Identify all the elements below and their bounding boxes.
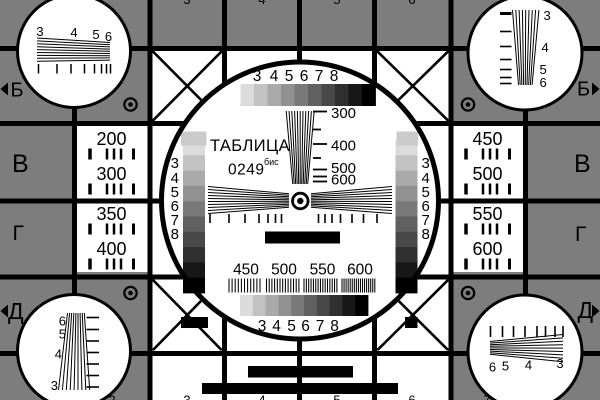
gray-step xyxy=(362,84,376,106)
grayscale-left xyxy=(183,140,205,293)
frequency-number: 600 xyxy=(472,239,502,259)
gray-step xyxy=(183,201,205,217)
digit-label: 7 xyxy=(316,318,325,335)
frequency-tick xyxy=(106,184,109,195)
gray-step xyxy=(266,295,279,316)
gray-step xyxy=(278,295,291,316)
gray-step xyxy=(396,171,418,187)
digit-label: 3 xyxy=(556,356,563,371)
gray-step xyxy=(349,84,363,106)
frequency-number: 400 xyxy=(96,239,126,259)
grayscale-digits-right: 345678 xyxy=(422,155,430,243)
frequency-tick xyxy=(508,149,511,160)
grayscale-top xyxy=(241,84,376,106)
frequency-tick xyxy=(132,259,135,270)
digit-label: 6 xyxy=(301,318,310,335)
frequency-tick xyxy=(496,184,499,195)
gray-step xyxy=(291,295,304,316)
frequency-number: 500 xyxy=(472,164,502,184)
corner-circle-top-left: 3456 xyxy=(18,0,131,108)
row-label-left-1: Б xyxy=(11,80,24,102)
digit-label: 4 xyxy=(272,318,281,335)
row-label-right-3: Г xyxy=(575,223,586,246)
frequency-tick xyxy=(508,259,511,270)
gray-step xyxy=(183,232,205,248)
digit-label: 5 xyxy=(92,27,99,42)
digit-label: 6 xyxy=(540,75,547,90)
frequency-tick xyxy=(489,224,492,235)
frequency-tick xyxy=(120,149,123,160)
frequency-tick xyxy=(482,184,485,195)
gray-step xyxy=(396,155,418,171)
gray-step xyxy=(253,295,266,316)
column-digit-stub: 6 xyxy=(408,0,415,7)
frequency-tick xyxy=(482,259,485,270)
test-card-canvas: 3456234567345678345678345678345678300400… xyxy=(0,0,600,400)
frequency-tick xyxy=(508,184,511,195)
digit-label: 4 xyxy=(525,358,532,373)
frequency-tick xyxy=(464,224,468,235)
frequency-tick xyxy=(88,184,92,195)
grayscale-bottom xyxy=(240,295,368,316)
corner-circle-bottom-right: 6543 xyxy=(468,295,582,400)
burst-label: 550 xyxy=(310,262,336,279)
frequency-tick xyxy=(496,224,499,235)
gray-step xyxy=(317,295,330,316)
bottom-bar-short xyxy=(248,366,353,378)
target-dot xyxy=(128,102,133,107)
frequency-tick xyxy=(113,224,116,235)
reference-patch-light-left xyxy=(181,132,207,146)
gray-step xyxy=(183,171,205,187)
reference-patch-light-right xyxy=(397,132,419,146)
reference-patch-black-left xyxy=(181,317,208,328)
burst-label: 450 xyxy=(233,262,259,279)
card-code: 0249 xyxy=(228,162,264,179)
burst-label: 500 xyxy=(271,262,297,279)
gray-step xyxy=(396,186,418,202)
frequency-tick xyxy=(464,184,468,195)
corner-circle-outline xyxy=(18,0,131,108)
digit-label: 6 xyxy=(300,68,309,85)
row-label-left-4: Д xyxy=(8,298,24,324)
row-label-right-1: Б xyxy=(577,79,590,101)
freq-label: 600 xyxy=(331,172,356,189)
digit-label: 8 xyxy=(171,226,179,243)
frequency-tick xyxy=(132,224,135,235)
gray-step xyxy=(322,84,336,106)
column-digit-stub: 5 xyxy=(333,0,340,7)
column-digit-stub: 6 xyxy=(408,393,415,400)
frequency-number: 300 xyxy=(96,164,126,184)
digit-label: 5 xyxy=(59,327,66,342)
digit-label: 5 xyxy=(287,318,296,335)
frequency-tick xyxy=(496,149,499,160)
frequency-tick xyxy=(88,149,92,160)
digit-label: 5 xyxy=(285,68,294,85)
tv-test-card: 3456234567345678345678345678345678300400… xyxy=(0,0,600,400)
frequency-tick xyxy=(482,149,485,160)
column-digit-stub: 3 xyxy=(183,393,190,400)
card-title: ТАБЛИЦА xyxy=(210,137,290,155)
gray-step xyxy=(183,217,205,233)
gray-step xyxy=(396,247,418,263)
bottom-bar-long xyxy=(202,383,398,394)
gray-step xyxy=(295,84,309,106)
frequency-tick xyxy=(106,259,109,270)
gray-step xyxy=(304,295,317,316)
row-label-right-2: В xyxy=(574,150,591,178)
frequency-tick xyxy=(496,259,499,270)
row-label-right-4: Д xyxy=(578,297,594,323)
frequency-number: 200 xyxy=(96,129,126,149)
row-label-left-2: В xyxy=(12,150,29,178)
frequency-tick xyxy=(120,259,123,270)
gray-step xyxy=(396,217,418,233)
frequency-tick xyxy=(106,224,109,235)
digit-label: 6 xyxy=(489,360,496,375)
target-dot xyxy=(466,102,471,107)
digit-label: 3 xyxy=(544,8,551,23)
digit-label: 8 xyxy=(422,226,430,243)
corner-circle-bottom-left: 6543 xyxy=(18,295,131,400)
digit-label: 3 xyxy=(36,24,43,39)
gray-step xyxy=(183,186,205,202)
grayscale-digits-left: 345678 xyxy=(171,155,179,243)
target-dot xyxy=(466,291,471,296)
card-code-suffix: бис xyxy=(264,157,279,167)
frequency-tick xyxy=(489,149,492,160)
reference-patch-black-right xyxy=(405,317,418,328)
gray-step xyxy=(342,295,355,316)
frequency-tick xyxy=(464,149,468,160)
column-digit-stub: 3 xyxy=(183,0,190,7)
gray-step xyxy=(241,84,255,106)
frequency-tick xyxy=(489,259,492,270)
burst-label: 600 xyxy=(347,262,373,279)
frequency-tick xyxy=(132,149,135,160)
row-label-left-3: Г xyxy=(13,222,24,245)
digit-label: 4 xyxy=(270,68,279,85)
gray-step xyxy=(335,84,349,106)
frequency-tick xyxy=(508,224,511,235)
frequency-tick xyxy=(113,259,116,270)
frequency-tick xyxy=(88,224,92,235)
digit-label: 3 xyxy=(51,378,58,393)
frequency-tick xyxy=(113,184,116,195)
gray-step xyxy=(281,84,295,106)
freq-label: 400 xyxy=(331,138,356,155)
target-dot xyxy=(128,291,133,296)
digit-label: 6 xyxy=(105,29,112,44)
gray-step xyxy=(268,84,282,106)
gray-step xyxy=(396,201,418,217)
frequency-number: 350 xyxy=(96,204,126,224)
frequency-tick xyxy=(489,184,492,195)
gray-step xyxy=(254,84,268,106)
frequency-tick xyxy=(132,184,135,195)
frequency-tick xyxy=(120,184,123,195)
digit-label: 8 xyxy=(330,68,339,85)
frequency-number: 550 xyxy=(472,204,502,224)
frequency-tick xyxy=(113,149,116,160)
frequency-tick xyxy=(464,259,468,270)
gray-step xyxy=(183,155,205,171)
digit-label: 7 xyxy=(315,68,324,85)
freq-label: 300 xyxy=(331,105,356,122)
center-black-bar xyxy=(265,232,340,244)
gray-step xyxy=(183,247,205,263)
gray-step xyxy=(355,295,368,316)
grayscale-right xyxy=(396,140,418,293)
gray-step xyxy=(240,295,253,316)
line-frequency-labels: 300400500600 xyxy=(331,105,356,189)
digit-label: 4 xyxy=(70,25,77,40)
generated-pattern: 3456234567345678345678345678345678300400… xyxy=(0,0,600,400)
frequency-tick xyxy=(120,224,123,235)
digit-label: 5 xyxy=(502,359,509,374)
corner-circle-top-right: 3456 xyxy=(468,0,582,110)
frequency-tick xyxy=(482,224,485,235)
frequency-tick xyxy=(106,149,109,160)
digit-label: 4 xyxy=(55,347,62,362)
gray-step xyxy=(308,84,322,106)
column-digit-stub: 4 xyxy=(258,0,265,7)
gray-step xyxy=(396,232,418,248)
frequency-number: 450 xyxy=(472,129,502,149)
gray-step xyxy=(330,295,343,316)
digit-label: 4 xyxy=(542,40,549,55)
bullseye-dot xyxy=(297,198,303,204)
frequency-tick xyxy=(88,259,92,270)
